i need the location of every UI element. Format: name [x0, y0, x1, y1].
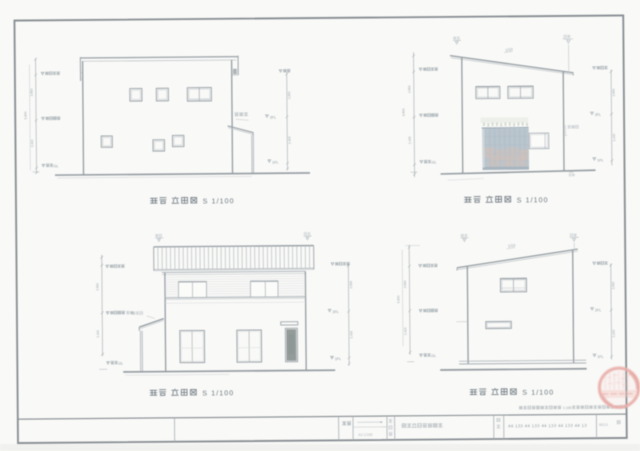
svg-text:44 133 44 133 44 133 44 133 44: 44 133 44 133 44 133 44 133 44 13: [508, 423, 587, 429]
svg-text:GL: GL: [431, 354, 436, 358]
svg-text:2FL: 2FL: [595, 113, 601, 117]
svg-text:2FL: 2FL: [595, 308, 601, 312]
svg-text:5,800: 5,800: [396, 295, 400, 303]
svg-text:1:100: 1:100: [563, 406, 572, 410]
svg-text:2,850: 2,850: [349, 281, 353, 289]
svg-text:2,400: 2,400: [349, 331, 353, 339]
svg-text:1FL: 1FL: [335, 357, 341, 361]
svg-text:2,850: 2,850: [611, 281, 615, 289]
svg-text:S 1/100: S 1/100: [203, 198, 235, 205]
svg-text:GL: GL: [432, 161, 437, 165]
svg-text:2,400: 2,400: [288, 136, 292, 144]
svg-text:2,850: 2,850: [287, 91, 291, 99]
svg-text:2,400: 2,400: [612, 329, 616, 337]
svg-text:2,850: 2,850: [407, 85, 411, 93]
svg-text:GL: GL: [118, 362, 123, 366]
svg-text:2,400: 2,400: [612, 133, 616, 141]
svg-text:2,400: 2,400: [30, 139, 34, 147]
svg-text:1FL: 1FL: [597, 355, 603, 359]
svg-text:2,850: 2,850: [30, 88, 34, 96]
svg-text:2FL: 2FL: [332, 310, 338, 314]
svg-text:2,850: 2,850: [403, 280, 407, 288]
svg-text:1FL: 1FL: [272, 161, 278, 165]
svg-text:B613: B613: [599, 423, 608, 427]
svg-text:2,400: 2,400: [96, 330, 100, 338]
svg-text:GL: GL: [54, 164, 59, 168]
svg-text:2,400: 2,400: [403, 327, 407, 335]
svg-text:S 1/100: S 1/100: [202, 390, 234, 397]
svg-text:S 1/100: S 1/100: [522, 390, 554, 397]
svg-text:5,800: 5,800: [401, 108, 405, 116]
svg-text:1FL: 1FL: [597, 158, 603, 162]
svg-text:A3 1/100: A3 1/100: [358, 433, 372, 437]
svg-text:2,850: 2,850: [95, 283, 99, 291]
svg-text:S 1/100: S 1/100: [517, 197, 549, 204]
svg-text:5,800: 5,800: [24, 111, 28, 119]
svg-text:2,400: 2,400: [408, 136, 412, 144]
svg-text:2FL: 2FL: [270, 116, 276, 120]
svg-text:2,850: 2,850: [612, 88, 616, 96]
